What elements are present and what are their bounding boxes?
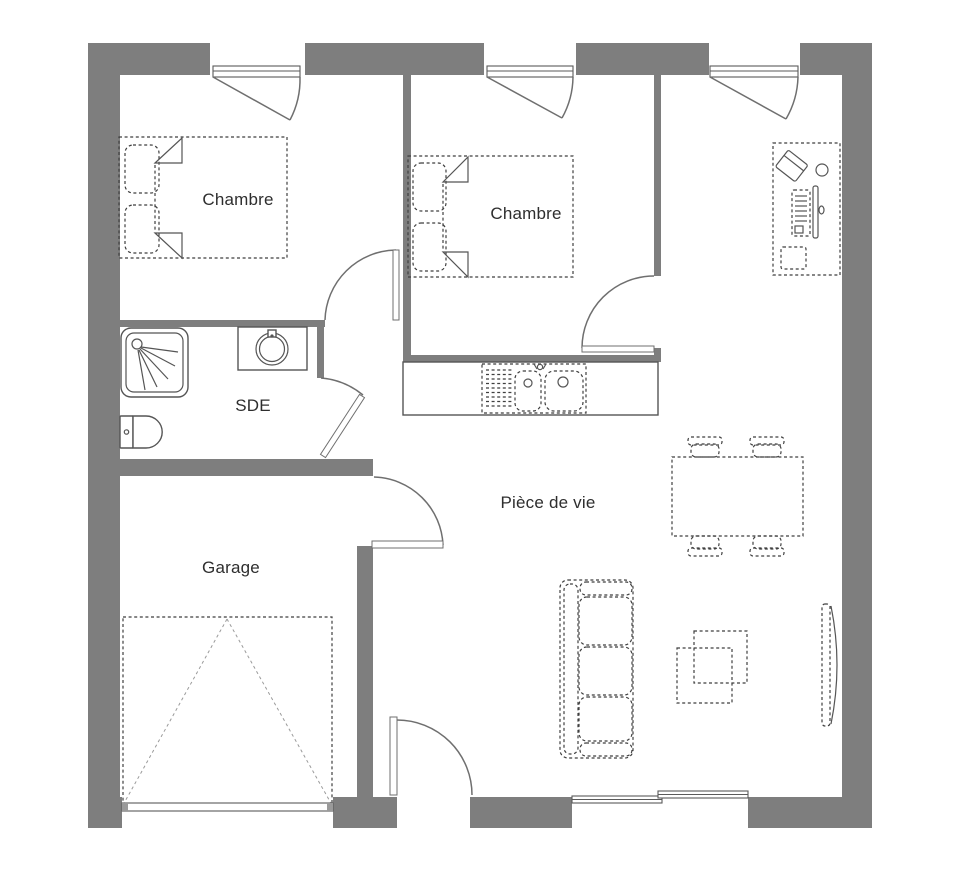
floor-plan: Chambre Chambre SDE Garage Pièce de vie (0, 0, 960, 873)
room-label-piece-de-vie: Pièce de vie (500, 493, 595, 513)
monitor-icon (813, 186, 818, 238)
room-label-garage: Garage (202, 558, 260, 578)
floor-plan-drawing (0, 0, 960, 873)
notepad-icon (781, 247, 806, 269)
sliding-bay-window-icon (572, 791, 748, 803)
mouse-icon (819, 206, 824, 214)
coffee-table-icon (677, 631, 747, 703)
keyboard-icon (792, 190, 810, 236)
window-icon-bedroom1 (213, 66, 300, 120)
laptop-icon (775, 150, 808, 182)
tv-icon (822, 604, 837, 726)
toilet-icon (120, 416, 162, 448)
room-label-chambre-1: Chambre (202, 190, 273, 210)
door-icon-sde (321, 378, 365, 458)
sofa-icon (560, 580, 633, 758)
kitchen-counter-icon (403, 362, 658, 415)
chair-icon (750, 536, 784, 556)
interior-walls (88, 75, 661, 797)
chair-icon (688, 437, 722, 457)
door-icon-bedroom1 (325, 250, 399, 320)
door-icon-entry (390, 717, 472, 795)
window-icon-bedroom2 (487, 66, 573, 118)
garage-door-icon (122, 617, 333, 811)
room-label-sde: SDE (235, 396, 271, 416)
room-label-chambre-2: Chambre (490, 204, 561, 224)
door-icon-garage-living (372, 477, 443, 548)
window-icon-living (710, 66, 798, 119)
exterior-walls (88, 43, 872, 828)
desk-icon (773, 143, 840, 275)
dining-table-icon (672, 437, 803, 556)
mug-icon (816, 164, 828, 176)
chair-icon (750, 437, 784, 457)
chair-icon (688, 536, 722, 556)
washbasin-icon (238, 327, 307, 370)
door-icon-bedroom2 (582, 276, 654, 352)
shower-icon (121, 328, 188, 397)
